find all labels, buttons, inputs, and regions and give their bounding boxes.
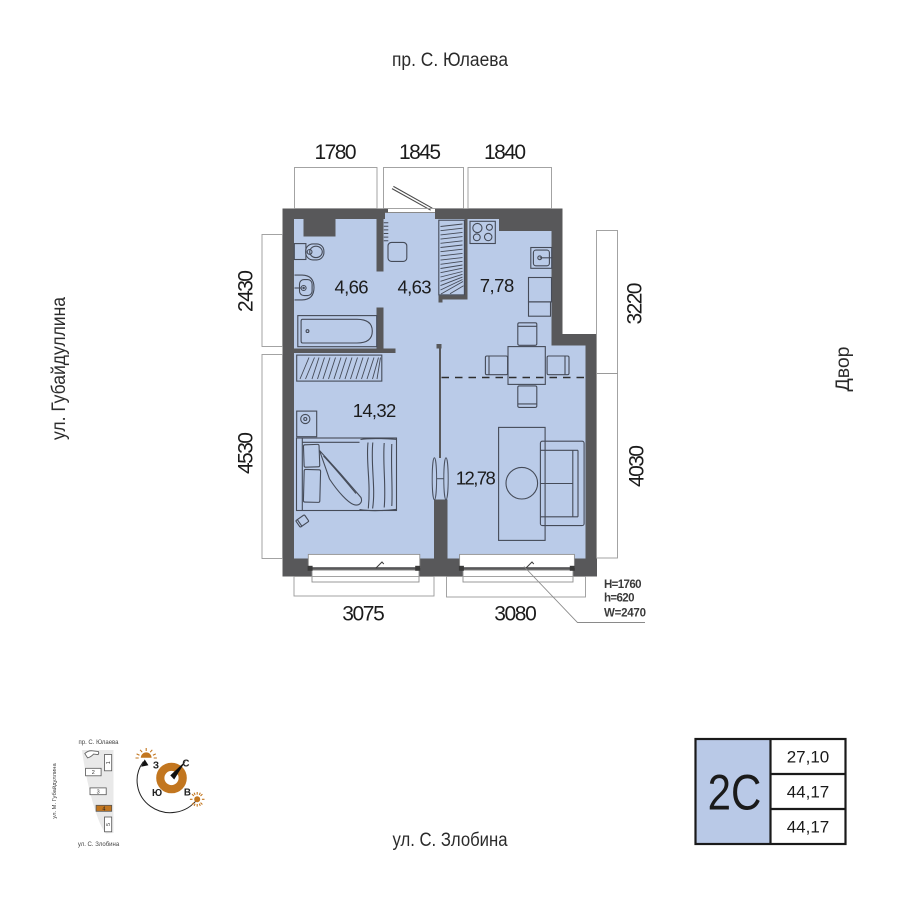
svg-text:4,63: 4,63	[398, 277, 432, 298]
svg-text:4,66: 4,66	[335, 277, 369, 298]
svg-text:2С: 2С	[708, 764, 762, 820]
svg-text:12,78: 12,78	[456, 468, 496, 489]
svg-text:44,17: 44,17	[787, 783, 830, 802]
svg-text:ул. Губайдуллина: ул. Губайдуллина	[49, 297, 70, 440]
svg-text:1: 1	[106, 761, 112, 764]
svg-text:4: 4	[102, 806, 105, 812]
svg-text:h=620: h=620	[604, 593, 635, 605]
svg-text:1780: 1780	[315, 141, 357, 164]
svg-text:2: 2	[92, 770, 95, 776]
svg-text:14,32: 14,32	[353, 400, 397, 421]
svg-text:3080: 3080	[494, 603, 537, 626]
svg-text:H=1760: H=1760	[604, 579, 642, 591]
svg-text:W=2470: W=2470	[604, 608, 646, 620]
svg-text:2430: 2430	[234, 270, 257, 312]
svg-text:С: С	[182, 758, 189, 769]
svg-text:В: В	[184, 787, 191, 798]
svg-text:7,78: 7,78	[480, 275, 515, 296]
svg-text:пр. С. Юлаева: пр. С. Юлаева	[392, 50, 508, 71]
svg-text:3220: 3220	[624, 283, 647, 325]
svg-text:27,10: 27,10	[787, 748, 830, 767]
svg-text:1845: 1845	[399, 141, 441, 164]
svg-text:3075: 3075	[342, 603, 385, 626]
svg-text:1840: 1840	[484, 141, 526, 164]
svg-text:44,17: 44,17	[787, 818, 830, 837]
svg-text:пр. С. Юлаева: пр. С. Юлаева	[78, 740, 119, 746]
svg-text:Двор: Двор	[833, 347, 854, 392]
svg-text:5: 5	[106, 823, 112, 826]
svg-text:4030: 4030	[626, 445, 649, 487]
svg-text:Ю: Ю	[152, 788, 162, 799]
svg-text:ул. М. Губайдуллина: ул. М. Губайдуллина	[51, 763, 58, 819]
svg-text:З: З	[153, 761, 159, 772]
svg-text:ул. С. Злобина: ул. С. Злобина	[393, 830, 508, 851]
svg-text:3: 3	[97, 789, 100, 795]
svg-text:4530: 4530	[234, 432, 257, 474]
svg-text:ул. С. Злобина: ул. С. Злобина	[78, 842, 120, 848]
